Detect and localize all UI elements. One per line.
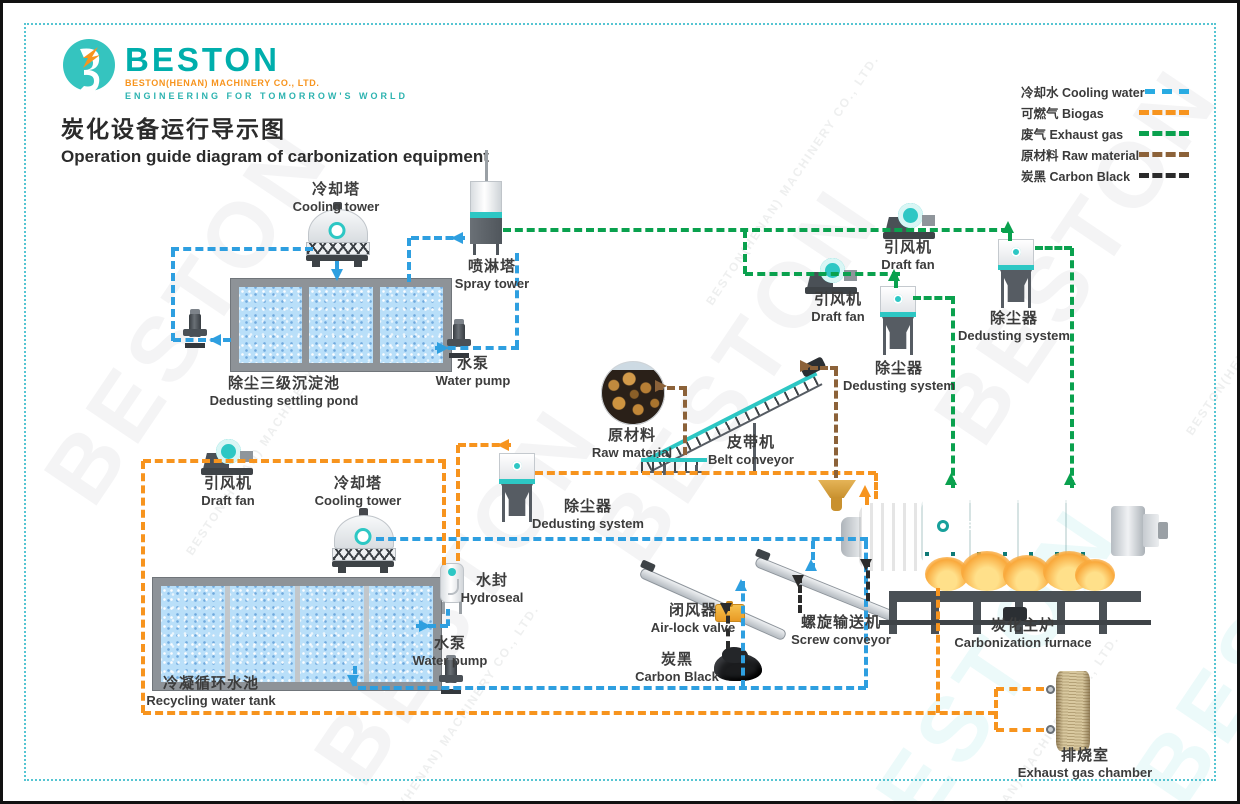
pipe-biogas	[456, 445, 460, 561]
legend: 冷却水 Cooling water 可燃气 Biogas 废气 Exhaust …	[1021, 81, 1189, 186]
exhaust-chamber-graphic	[1056, 671, 1090, 751]
dedusting-2-graphic	[998, 239, 1034, 309]
pipe-biogas	[996, 687, 1044, 691]
legend-item-carbon-black: 炭黑 Carbon Black	[1021, 165, 1189, 186]
legend-item-raw-material: 原材料 Raw material	[1021, 144, 1189, 165]
pipe-biogas	[535, 471, 876, 475]
diagram-canvas: BESTON BESTON BESTON BESTON BESTON BESTO…	[0, 0, 1240, 804]
flow-arrow	[347, 675, 359, 687]
legend-label: 可燃气 Biogas	[1021, 103, 1104, 122]
draft-fan-mid-graphic	[805, 258, 857, 294]
flow-arrow	[1002, 221, 1014, 233]
legend-swatch-carbon-black	[1139, 173, 1189, 178]
pipe-cooling-water	[171, 247, 313, 251]
pipe-biogas	[141, 461, 145, 713]
legend-item-biogas: 可燃气 Biogas	[1021, 102, 1189, 123]
beston-dot-icon	[937, 520, 949, 532]
flow-arrow	[800, 360, 812, 372]
flow-arrow	[209, 334, 221, 346]
beston-logo: BESTON BESTON(HENAN) MACHINERY CO., LTD.…	[61, 37, 489, 101]
flow-arrow	[497, 439, 509, 451]
legend-label: 原材料 Raw material	[1021, 145, 1139, 164]
header: BESTON BESTON(HENAN) MACHINERY CO., LTD.…	[61, 37, 489, 167]
pipe-cooling-water	[407, 238, 411, 282]
watermark-company: BESTON(HENAN) MACHINERY CO., LTD.	[943, 632, 1122, 804]
flow-arrow	[451, 232, 463, 244]
pipe-cooling-water	[446, 609, 450, 626]
draft-fan-left-graphic	[201, 439, 253, 475]
furnace-brand-text: BESTON	[953, 518, 1013, 533]
beston-logo-icon	[61, 37, 117, 98]
flow-arrow	[860, 559, 872, 571]
pipe-exhaust-gas	[913, 296, 953, 300]
flow-arrow	[437, 342, 449, 354]
pipe-exhaust-gas	[951, 296, 955, 488]
pipe-biogas	[936, 588, 940, 713]
label-settling-pond: 除尘三级沉淀池Dedusting settling pond	[199, 375, 369, 408]
pipe-exhaust-gas	[1035, 246, 1072, 250]
legend-label: 废气 Exhaust gas	[1021, 124, 1123, 143]
pipe-exhaust-gas	[745, 272, 900, 276]
label-draft-fan-left: 引风机Draft fan	[143, 475, 313, 508]
pipe-biogas	[143, 459, 446, 463]
cooling-tower-1-graphic	[306, 209, 368, 267]
legend-swatch-raw-material	[1139, 152, 1189, 157]
page-title-en: Operation guide diagram of carbonization…	[61, 147, 489, 167]
pipe-biogas	[143, 711, 996, 715]
pipe-exhaust-gas	[503, 228, 1009, 232]
spray-tower-graphic	[470, 150, 502, 258]
pipe-exhaust-gas	[743, 230, 747, 274]
flow-arrow	[1064, 473, 1076, 485]
pipe-cooling-water	[741, 581, 745, 688]
belt-conveyor-graphic	[633, 353, 863, 473]
flow-arrow	[792, 575, 804, 587]
flow-arrow	[945, 473, 957, 485]
brand-company: BESTON(HENAN) MACHINERY CO., LTD.	[125, 78, 408, 88]
legend-swatch-biogas	[1139, 110, 1189, 115]
dedusting-center-graphic	[499, 453, 535, 523]
flow-arrow	[888, 269, 900, 281]
flow-arrow	[805, 559, 817, 571]
pipe-raw-material	[683, 388, 687, 455]
flow-arrow	[419, 620, 431, 632]
carbon-black-graphic	[714, 653, 762, 681]
label-exhaust-chamber: 排烧室Exhaust gas chamber	[1000, 747, 1170, 780]
pipe-cooling-water	[171, 249, 175, 341]
pipe-cooling-water	[173, 338, 231, 342]
legend-swatch-cooling-water	[1145, 89, 1189, 94]
pipe-raw-material	[834, 368, 838, 478]
flow-arrow	[720, 603, 732, 615]
legend-label: 炭黑 Carbon Black	[1021, 166, 1130, 185]
pipe-exhaust-gas	[1070, 248, 1074, 488]
chamber-port-icon	[1046, 725, 1055, 734]
flame-icon	[1075, 559, 1115, 591]
legend-label: 冷却水 Cooling water	[1021, 82, 1145, 101]
feed-funnel-graphic	[818, 480, 856, 498]
pipe-cooling-water	[376, 537, 868, 541]
brand-name: BESTON	[125, 43, 408, 76]
page-title-zh: 炭化设备运行导示图	[61, 110, 489, 144]
hydroseal-graphic	[440, 563, 464, 615]
flow-arrow	[859, 485, 871, 497]
label-cooling-tower-2: 冷却塔Cooling tower	[273, 475, 443, 508]
flow-arrow	[655, 380, 667, 392]
dedusting-1-graphic	[880, 286, 916, 356]
pipe-biogas	[996, 728, 1044, 732]
legend-item-cooling-water: 冷却水 Cooling water	[1021, 81, 1189, 102]
pipe-biogas	[442, 461, 446, 565]
pipe-cooling-water	[515, 253, 519, 348]
draft-fan-top-graphic	[883, 203, 935, 239]
legend-item-exhaust-gas: 废气 Exhaust gas	[1021, 123, 1189, 144]
water-pump-left-graphic	[183, 309, 207, 349]
chamber-port-icon	[1046, 685, 1055, 694]
legend-swatch-exhaust-gas	[1139, 131, 1189, 136]
pipe-biogas	[874, 473, 878, 499]
flow-arrow	[331, 269, 343, 281]
flow-arrow	[735, 579, 747, 591]
cooling-tower-2-graphic	[332, 515, 394, 573]
water-pump-1-graphic	[447, 319, 471, 359]
settling-pond-graphic	[231, 279, 451, 371]
pipe-cooling-water	[358, 686, 866, 690]
brand-slogan: ENGINEERING FOR TOMORROW'S WORLD	[125, 91, 408, 101]
recycling-tank-graphic	[153, 578, 441, 690]
furnace-brand: BESTON	[937, 518, 1013, 533]
pipe-biogas	[994, 689, 998, 730]
watermark-company: BESTON(HENAN) MACHINERY CO., LTD.	[1183, 182, 1240, 438]
